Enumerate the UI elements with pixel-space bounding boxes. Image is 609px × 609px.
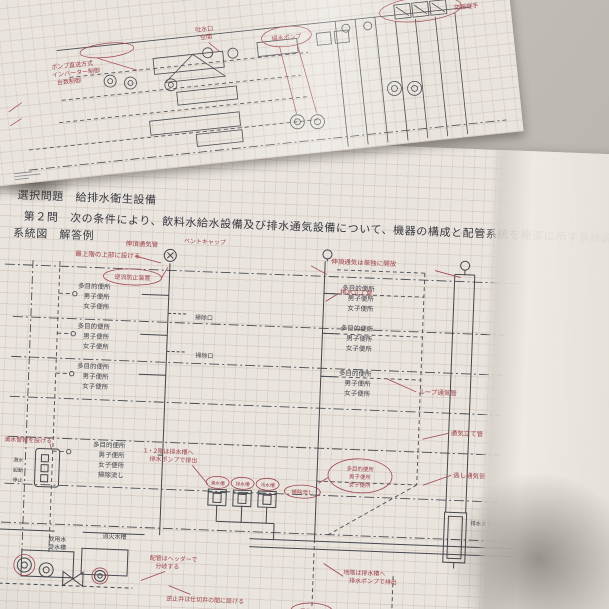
cleanout-label: 掃除口 bbox=[195, 351, 213, 360]
fire-tank-label: 消火水槽 bbox=[102, 532, 126, 541]
label-stack-vent: 伸頂通気管 bbox=[126, 239, 159, 249]
note-basement-1: 地階は排水槽へ bbox=[343, 568, 385, 578]
fixture-label: 男子便所 bbox=[82, 371, 109, 381]
label-backflow-preventer: 逆流防止装置 bbox=[114, 273, 150, 282]
cloud-fixture-1: 多目的便所 bbox=[346, 464, 374, 473]
fixture-label: 女子便所 bbox=[98, 460, 125, 470]
fixture-label: 多目的便所 bbox=[93, 440, 126, 450]
floor-slab-lines bbox=[0, 264, 522, 542]
note-basement-2: 排水ポンプで排出 bbox=[349, 576, 397, 586]
fixture-label: 掃除流し bbox=[98, 470, 124, 480]
fixture-label: 女子便所 bbox=[83, 301, 110, 311]
drink-tank-label: 飲用水 bbox=[48, 535, 66, 544]
cloud-fixture-2: 男子便所 bbox=[349, 472, 372, 481]
fixture-label: 男子便所 bbox=[344, 378, 371, 388]
note-header-2: 分岐する bbox=[155, 562, 179, 571]
float-label: 起動 bbox=[13, 467, 23, 474]
supply-fittings bbox=[66, 291, 77, 453]
fixture-label: 多目的便所 bbox=[339, 368, 372, 378]
fixture-label: 多目的便所 bbox=[78, 281, 111, 291]
label-flex-joint: 防振継手 bbox=[454, 1, 479, 11]
note-top-floor: 最上階の上部に設ける bbox=[75, 249, 140, 260]
fixture-label: 多目的便所 bbox=[341, 323, 374, 333]
label-loop-vent: ループ通気管 bbox=[418, 387, 457, 397]
fixture-label: 女子便所 bbox=[347, 303, 374, 313]
note-air-gap-2: 空間 bbox=[200, 32, 213, 41]
label-vent-cap: ベントキャップ bbox=[184, 238, 226, 247]
fixture-label: 多目的便所 bbox=[77, 361, 110, 371]
label-relief-vent: 逃し通気管 bbox=[453, 470, 486, 480]
fixture-label: 男子便所 bbox=[346, 333, 373, 343]
drink-tank-label: 受水槽 bbox=[48, 543, 66, 552]
note-alarm: 満水警報を設ける bbox=[4, 435, 52, 445]
answer-example-title: 系統図 解答例 bbox=[13, 224, 95, 243]
note-open-vent: 伸頂通気は単独に開放 bbox=[331, 257, 397, 269]
label-slop-sink: 掃除流し bbox=[291, 488, 313, 497]
fixture-label: 男子便所 bbox=[84, 291, 111, 301]
note-check-valve: 逆止弁は仕切弁の間に設ける bbox=[166, 594, 244, 605]
label-pit-c: 汚水槽 bbox=[260, 482, 275, 490]
label-vent-stack: 通気立て管 bbox=[451, 428, 484, 438]
cloud-fixture-3: 女子便所 bbox=[349, 480, 372, 489]
float-label: 停止 bbox=[12, 477, 22, 484]
fixture-label: 女子便所 bbox=[82, 381, 109, 391]
fixture-label: 女子便所 bbox=[83, 341, 110, 351]
piping-solid bbox=[0, 238, 524, 603]
tank-labels: 飲用水 受水槽 消火水槽 排水ますへ 満水 起動 停止 bbox=[10, 457, 500, 569]
fixture-label: 女子便所 bbox=[346, 343, 373, 353]
float-label: 満水 bbox=[13, 457, 23, 464]
fixture-groups-middle: 多目的便所 男子便所 女子便所 多目的便所 男子便所 女子便所 多目的便所 男子… bbox=[338, 283, 375, 398]
answer-sheet: 多目的便所 男子便所 女子便所 多目的便所 男子便所 女子便所 多目的便所 男子… bbox=[0, 130, 609, 609]
red-annotations bbox=[12, 252, 461, 609]
photo-of-papers: 多目的便所 男子便所 女子便所 多目的便所 男子便所 女子便所 多目的便所 男子… bbox=[0, 0, 609, 609]
fixture-label: 女子便所 bbox=[344, 388, 371, 398]
label-drain-stack: 排水立て管 bbox=[340, 287, 373, 297]
label-pit-b: 排水槽 bbox=[235, 481, 250, 489]
to-masu-label: 排水ますへ bbox=[470, 519, 498, 528]
fixture-label: 男子便所 bbox=[98, 450, 125, 460]
fixture-label: 男子便所 bbox=[83, 331, 110, 341]
label-pit-a: 湧水槽 bbox=[210, 480, 225, 488]
cleanout-label: 掃除口 bbox=[195, 313, 213, 322]
fixture-label: 多目的便所 bbox=[77, 321, 110, 331]
